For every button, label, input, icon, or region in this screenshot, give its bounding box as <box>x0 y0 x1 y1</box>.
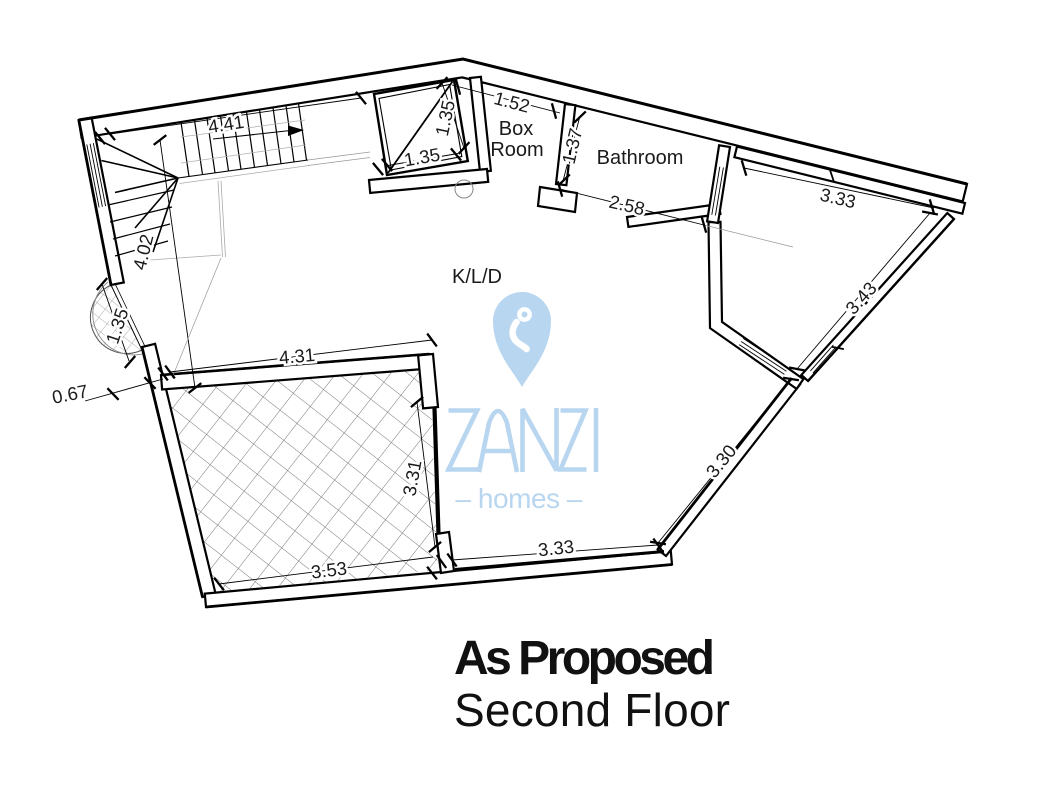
svg-text:2.58: 2.58 <box>607 191 647 220</box>
svg-text:Bathroom: Bathroom <box>597 147 684 169</box>
svg-text:3.33: 3.33 <box>537 536 575 561</box>
svg-text:0.67: 0.67 <box>50 380 89 407</box>
svg-text:Box: Box <box>499 118 533 140</box>
svg-text:Room: Room <box>490 139 543 161</box>
svg-text:4.31: 4.31 <box>278 344 316 368</box>
svg-text:3.53: 3.53 <box>310 557 348 582</box>
svg-text:K/L/D: K/L/D <box>452 266 502 288</box>
svg-text:3.43: 3.43 <box>841 278 881 319</box>
svg-text:4.02: 4.02 <box>128 232 157 272</box>
svg-text:– homes –: – homes – <box>456 483 585 514</box>
svg-text:Second Floor: Second Floor <box>454 684 730 736</box>
svg-text:3.33: 3.33 <box>818 184 858 213</box>
svg-text:4.41: 4.41 <box>207 111 246 137</box>
svg-text:As Proposed: As Proposed <box>454 632 715 685</box>
